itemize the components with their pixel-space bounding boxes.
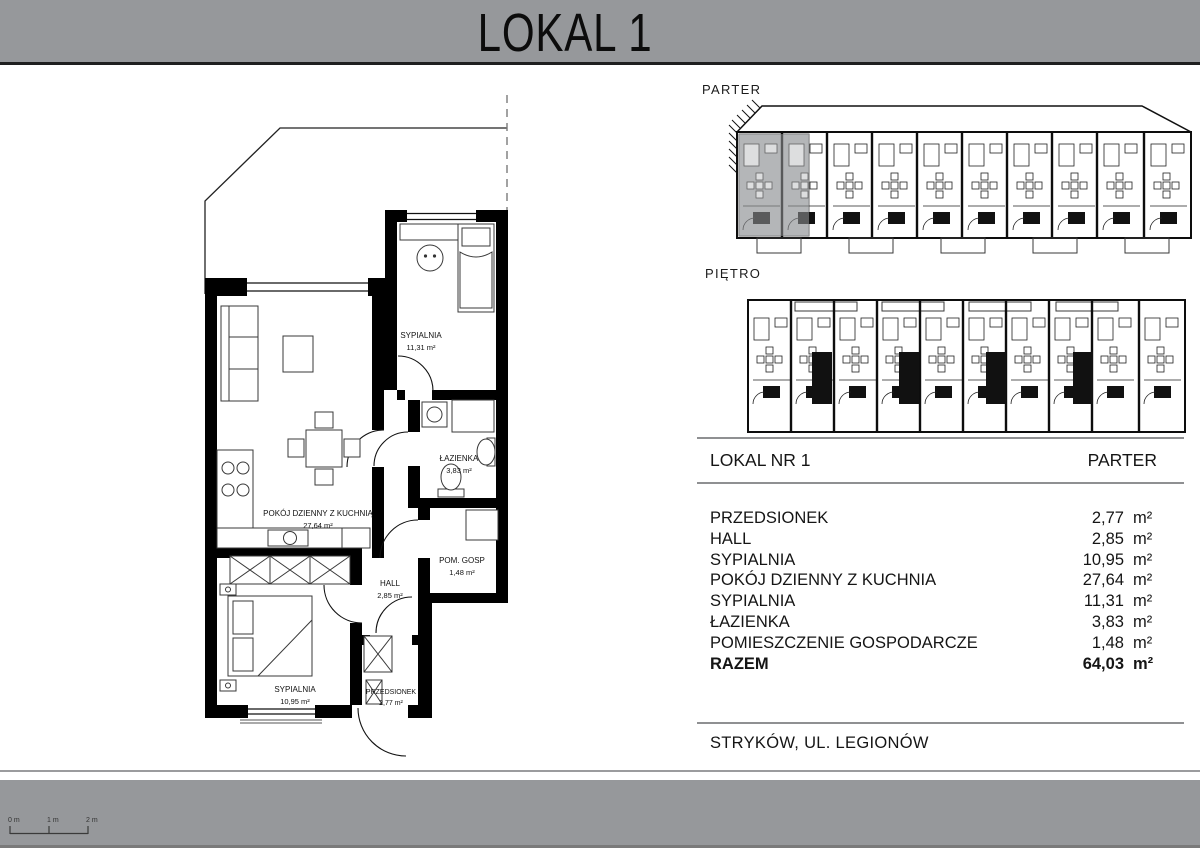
room-label: SYPIALNIA (274, 685, 316, 694)
door-arc (324, 585, 362, 623)
table-total-row: RAZEM64,03m² (710, 654, 1157, 675)
pietro-overview-plan (748, 300, 1185, 432)
main-floor-plan: SYPIALNIA 11,31 m² POKÓJ DZIENNY Z KUCHN… (205, 95, 508, 756)
table-row: HALL2,85m² (710, 529, 1157, 550)
unit-dividers (791, 300, 1139, 432)
table-row: PRZEDSIONEK2,77m² (710, 508, 1157, 529)
room-labels: SYPIALNIA 11,31 m² POKÓJ DZIENNY Z KUCHN… (263, 331, 485, 707)
table-row: ŁAZIENKA3,83m² (710, 612, 1157, 633)
table-row: POKÓJ DZIENNY Z KUCHNIA27,64m² (710, 570, 1157, 591)
room-label: POKÓJ DZIENNY Z KUCHNIĄ (263, 509, 373, 518)
room-area: 27,64 m² (303, 521, 333, 530)
staircases (812, 352, 1093, 404)
address-text: STRYKÓW, UL. LEGIONÓW (710, 734, 929, 753)
door-arc (374, 432, 408, 466)
highlighted-unit-tint (739, 134, 809, 236)
building-outline (748, 300, 1185, 432)
dining-table (288, 412, 360, 485)
room-area: 11,31 m² (406, 343, 436, 352)
double-bed (220, 584, 312, 691)
single-bed (458, 224, 494, 312)
door-arc (398, 356, 433, 391)
terrace-hatch-marks (729, 100, 760, 173)
room-area: 1,48 m² (449, 568, 475, 577)
room-label: HALL (380, 579, 401, 588)
room-area: 2,85 m² (377, 591, 403, 600)
footer-bar (0, 780, 1200, 848)
wardrobe (230, 556, 350, 584)
table-row: SYPIALNIA10,95m² (710, 550, 1157, 571)
page-title-text: LOKAL 1 (478, 2, 653, 64)
room-area: 2,77 m² (379, 700, 403, 707)
table-row: SYPIALNIA11,31m² (710, 591, 1157, 612)
washbasin (477, 438, 495, 466)
balcony-insets (795, 302, 1118, 311)
unit-dividers (782, 132, 1144, 238)
pietro-overview-label: PIĘTRO (705, 266, 761, 281)
room-label: ŁAZIENKA (440, 454, 479, 463)
door-arc (380, 520, 418, 558)
door-arc (347, 430, 384, 467)
entry-door-arc (358, 708, 406, 756)
sofa (221, 306, 258, 401)
room-label: SYPIALNIA (400, 331, 442, 340)
divider-line (697, 437, 1184, 439)
door-arcs (324, 356, 433, 756)
divider-line (697, 722, 1184, 724)
room-label: PRZEDSIONEK (366, 689, 417, 696)
room-label: POM. GOSP (439, 556, 485, 565)
room-area-table: PRZEDSIONEK2,77m² HALL2,85m² SYPIALNIA10… (710, 508, 1157, 674)
highlighted-unit (739, 134, 809, 236)
page-title: LOKAL 1 (0, 2, 1130, 64)
stove (222, 462, 249, 496)
roof-line (737, 106, 1191, 132)
room-area: 10,95 m² (280, 697, 310, 706)
divider-line (697, 482, 1184, 484)
coffee-table (283, 336, 313, 372)
divider-line (0, 770, 1200, 772)
armchair (417, 245, 443, 271)
door-arc (376, 597, 412, 633)
drawings: SYPIALNIA 11,31 m² POKÓJ DZIENNY Z KUCHN… (0, 0, 1200, 848)
header-bar: LOKAL 1 (0, 0, 1200, 65)
dresser (400, 224, 458, 240)
plan-sheet: LOKAL 1 PARTER PIĘTRO LOKAL NR 1 PARTER … (0, 0, 1200, 848)
entry-porches (757, 238, 1169, 253)
water-heater (466, 510, 498, 540)
windows (240, 214, 476, 724)
parter-overview-label: PARTER (702, 82, 761, 97)
toilet (438, 464, 464, 497)
unit-table-header: LOKAL NR 1 PARTER (710, 450, 1157, 471)
terrace-outline (205, 128, 507, 294)
unit-floor: PARTER (1088, 450, 1157, 471)
unit-name: LOKAL NR 1 (710, 450, 811, 471)
room-area: 3,83 m² (446, 466, 472, 475)
washing-machine (422, 402, 447, 427)
kitchen-counter (217, 450, 370, 548)
parter-overview-plan (729, 100, 1191, 253)
walls (205, 210, 508, 718)
vestibule-wardrobe (364, 636, 392, 704)
table-row: POMIESZCZENIE GOSPODARCZE1,48m² (710, 633, 1157, 654)
building-outline (737, 132, 1191, 238)
sink (268, 530, 308, 546)
shower (452, 400, 494, 432)
